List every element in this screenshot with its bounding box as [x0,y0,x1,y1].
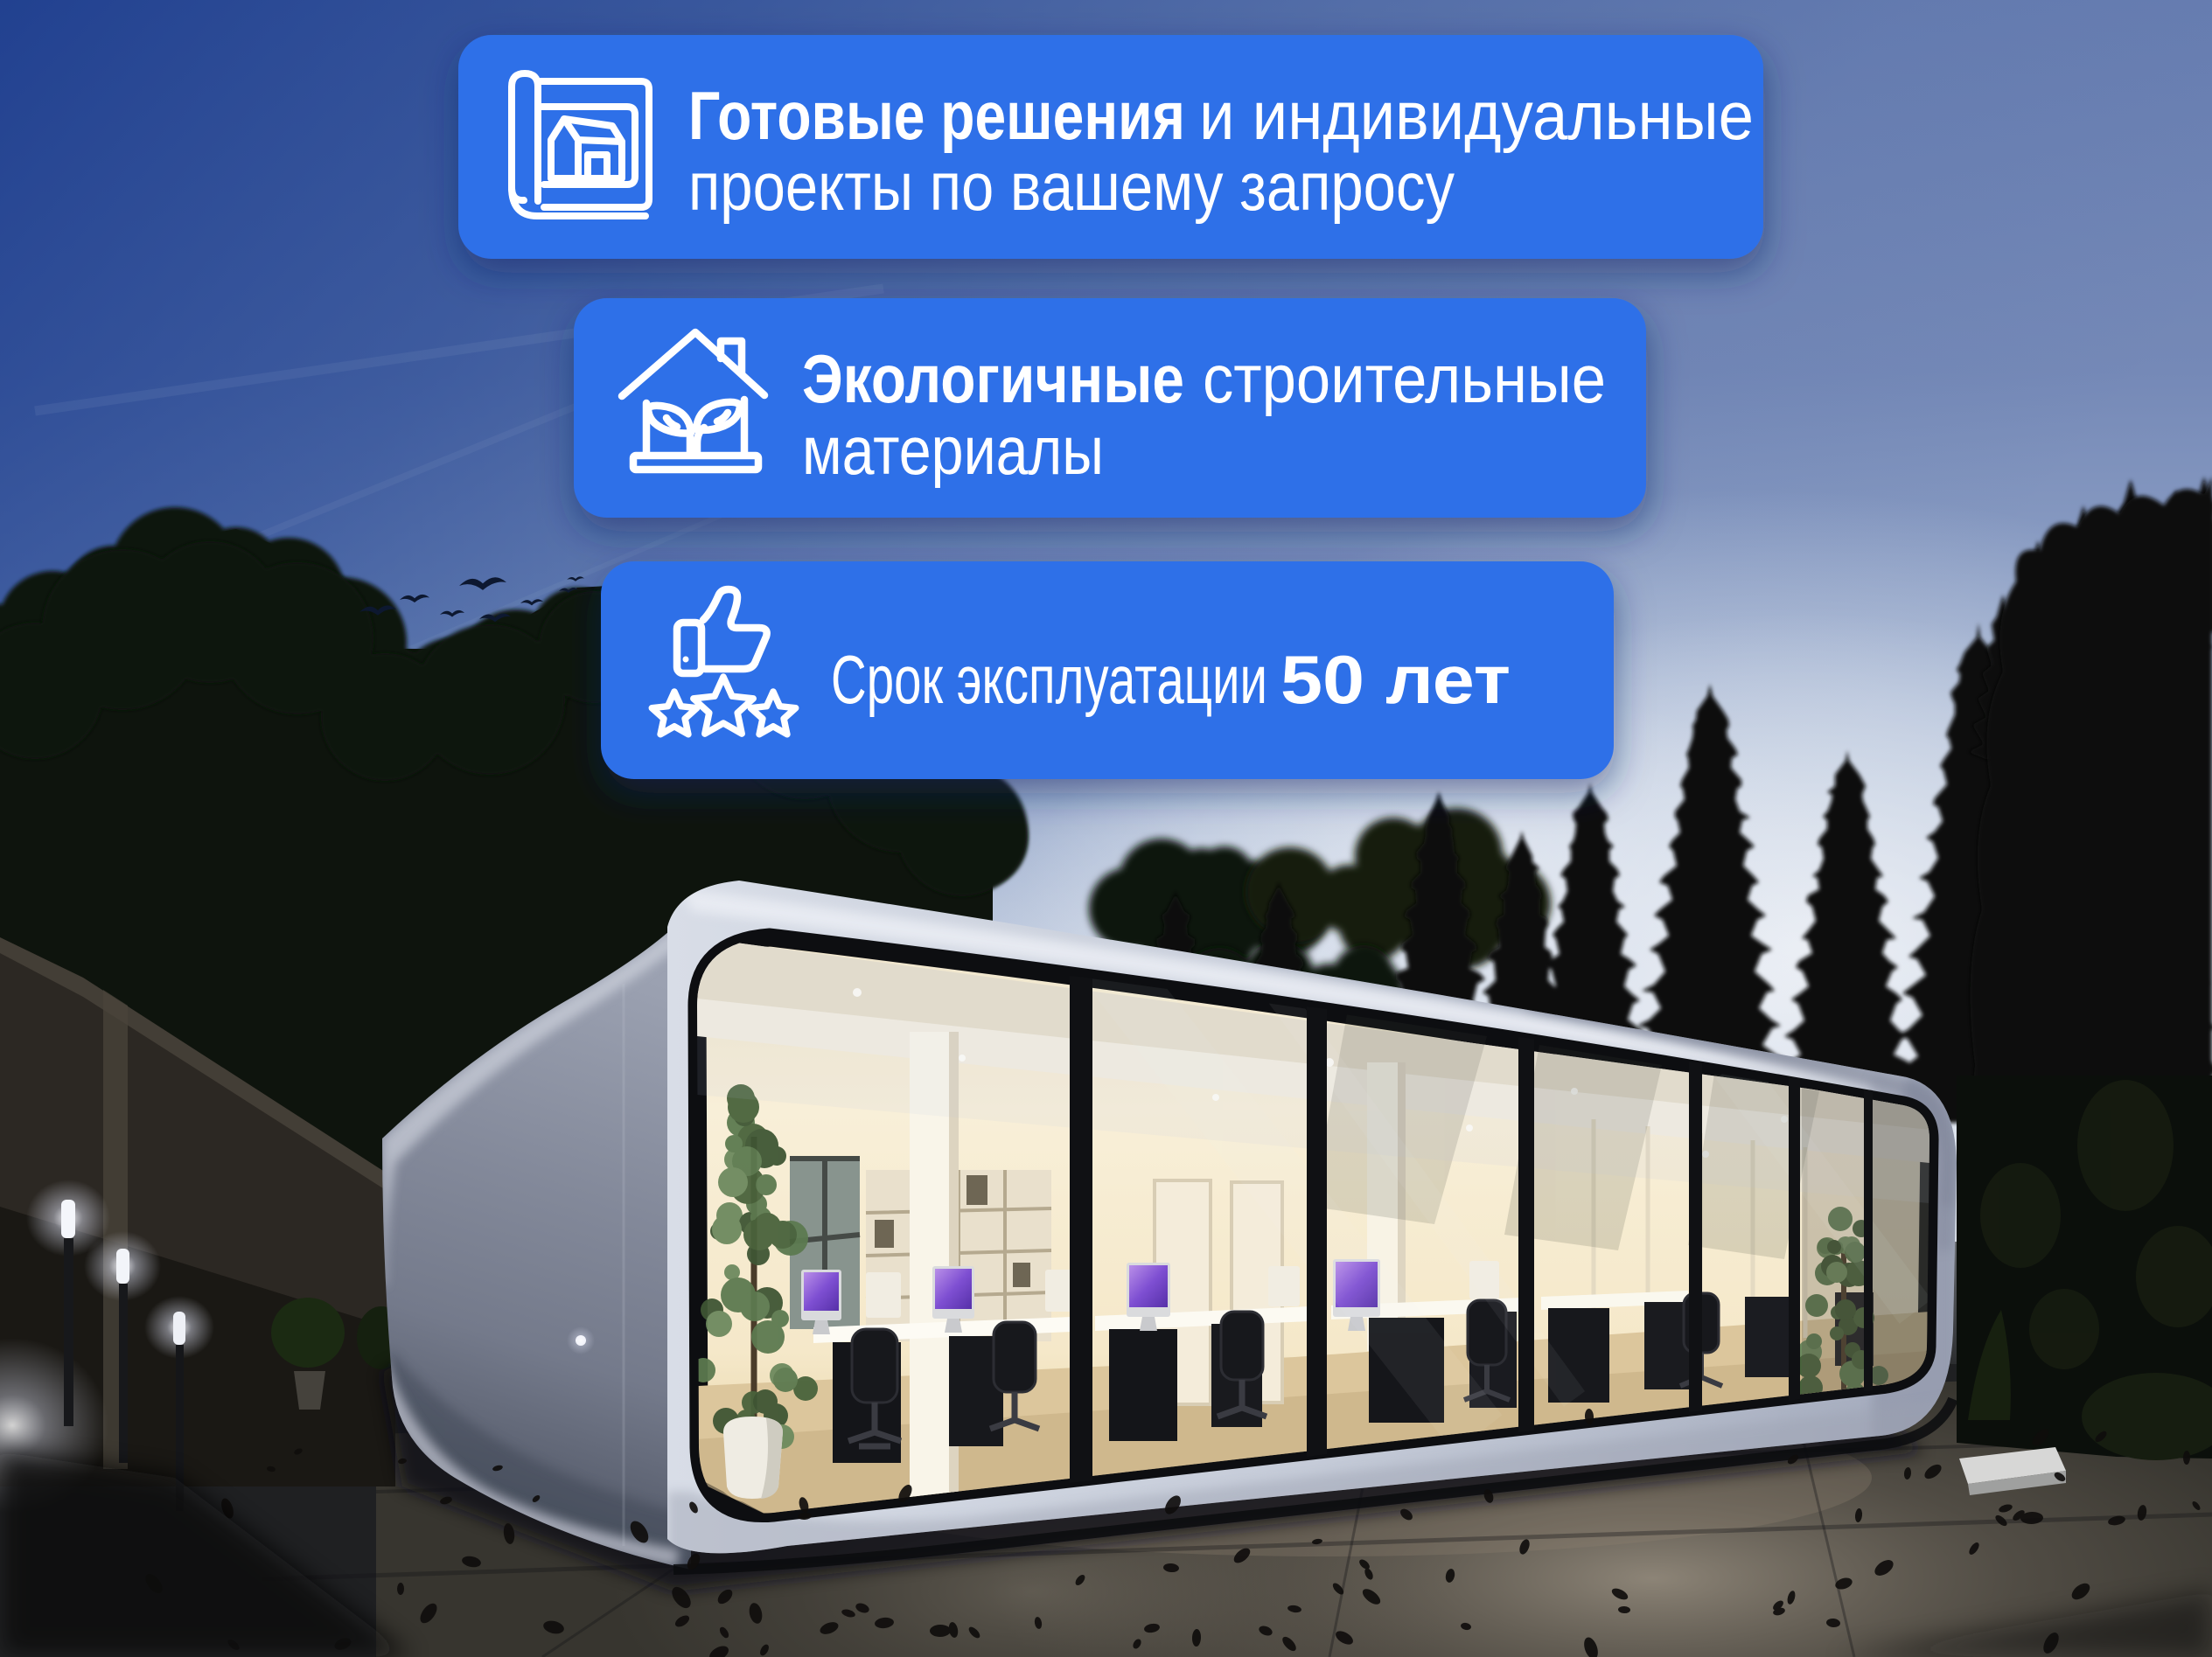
svg-text:Готовые решения: Готовые решения [688,77,1185,154]
svg-text:50 лет: 50 лет [1280,641,1511,718]
svg-text:материалы: материалы [802,412,1104,489]
svg-text:Срок эксплуатации: Срок эксплуатации [831,641,1267,718]
svg-text:и индивидуальные: и индивидуальные [1199,77,1754,154]
svg-text:строительные: строительные [1203,340,1606,417]
svg-text:Экологичные: Экологичные [802,340,1184,417]
svg-text:проекты по вашему запросу: проекты по вашему запросу [688,148,1455,225]
